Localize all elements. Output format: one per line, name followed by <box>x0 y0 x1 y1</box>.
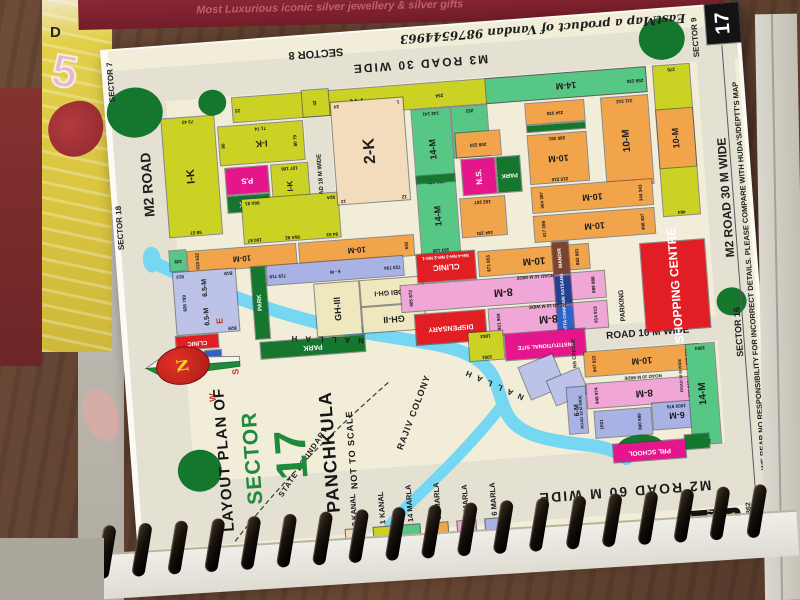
plot-number: 142 141 <box>422 110 439 116</box>
gh-3-label: GH-III <box>333 297 344 322</box>
block-10m-311: 10-M311 312298 <box>601 95 653 186</box>
compass-n: N <box>173 357 193 373</box>
plot-number: 80 79 <box>293 135 299 147</box>
ns-creche-label-label: NS CRECHE <box>571 338 578 368</box>
plot-number: 24 <box>334 103 339 108</box>
plot-number: 719 718 <box>269 272 286 278</box>
block-10m-364-label: 10-M <box>582 191 603 202</box>
block-ik-c: I-K71 748680 79 <box>218 121 305 165</box>
plot-number: 871 853 <box>486 255 492 272</box>
nallah-label-label: N A L L A H <box>288 334 364 344</box>
road-18m-label-s-label: ROAD 18 M WIDE <box>578 395 584 429</box>
prl-school-label: PRL SCHOOL <box>628 446 671 456</box>
plot-number: 276 <box>667 66 675 71</box>
block-1063: 10631051 <box>468 331 504 361</box>
plot-number: NH-4 NH-3 NH-2 NH-1 <box>422 252 469 260</box>
plot-42: 42 <box>302 89 330 117</box>
block-10m-871-label: 10-M <box>522 254 545 266</box>
block-ik-d-label: I-K <box>286 180 295 191</box>
plot-number: 642 <box>405 241 410 249</box>
m2-road-label-label: M2 ROAD <box>138 152 157 217</box>
plot-number: 334 335 <box>546 109 563 115</box>
plot-number: 862 861 <box>576 248 582 265</box>
block-8m-1-label: 8-M <box>493 285 513 297</box>
sector-9-label-label: SECTOR 9 <box>690 17 701 57</box>
ns-site: N.S. <box>461 158 497 195</box>
notebook-pages-edge <box>92 510 799 600</box>
sector-18-label-label: SECTOR 18 <box>115 206 126 251</box>
plot-number: 73 43 <box>182 118 194 124</box>
block-14m-c-label: 14-M <box>555 80 576 91</box>
magazine-letter: D <box>50 24 61 41</box>
plot-number: 229 <box>174 258 182 263</box>
clinic-main: CLINICNH-4 NH-3 NH-2 NH-1 <box>416 251 476 283</box>
plot-number: 6 - M <box>330 268 341 274</box>
dispensary-label: DISPENSARY <box>428 322 474 332</box>
magazine-red-blob <box>42 95 111 162</box>
plot-number: 1004 <box>695 344 706 350</box>
ps-site-label: P.S <box>241 176 253 185</box>
sector-8-label-label: SECTOR 8 <box>288 45 343 60</box>
photo-of-map: D 5 Most Luxurious iconic silver jewelle… <box>0 0 800 600</box>
ns-site-label: N.S. <box>474 168 483 184</box>
plot-number: 344 343 <box>639 184 645 201</box>
plot-number: 107 106 <box>281 165 298 171</box>
park-label: PARK <box>500 171 517 178</box>
sheet-number-label: 17 <box>712 11 734 35</box>
park-label: PARK <box>257 294 264 311</box>
plot-number: 25 <box>235 107 240 112</box>
parking-label-label: PARKING <box>618 289 627 321</box>
block-65m-label: 6.5-M <box>201 279 209 297</box>
block-2k: 2-K2411312 <box>331 97 410 204</box>
block-10m-208: 208 233 <box>455 130 501 157</box>
compass-e: E <box>214 317 224 324</box>
plot-number: 311 312 <box>616 97 633 103</box>
plot-number: 1051 <box>482 354 493 360</box>
plot-number: 1021 <box>600 419 606 430</box>
plot-number: 990 989 <box>638 413 644 430</box>
plot-number: 58 57 <box>190 229 202 235</box>
park <box>685 433 710 449</box>
magazine-red-edge <box>0 88 42 366</box>
plot-number: 12 <box>402 194 407 199</box>
block-10m-417-label: 10-M <box>584 220 605 231</box>
mandir-label: MANDIR <box>558 248 564 268</box>
block-10m-row-b-label: 10-M <box>347 245 366 254</box>
plot-number: 813 <box>176 273 184 278</box>
plot-number: 192 207 <box>474 198 491 204</box>
block-8m-3-label: 8-M <box>635 387 653 398</box>
plot-number: 380 381 <box>548 134 565 140</box>
sheet-number: 17 <box>704 2 741 44</box>
plot-number: 259 238 <box>627 77 644 83</box>
plot-number: 86 <box>222 143 227 148</box>
shopping-centre-label: SHOPPING CENTRE <box>665 227 686 344</box>
plot-number: 921 904 <box>497 313 503 330</box>
park: PARK <box>496 156 522 193</box>
plot-number: 914 913 <box>594 306 600 323</box>
magazine-number: 5 <box>48 42 83 100</box>
plot-number: 1 <box>397 99 400 104</box>
plot-number: 95A 92 <box>285 234 300 240</box>
block-ik-a: I-K73 4358 57 <box>161 116 222 238</box>
plot-number: 826 799 <box>183 295 189 312</box>
plot-number: 1063 <box>480 333 491 339</box>
block-14m-a-label: 14-M <box>428 139 439 160</box>
plot-number: 96A 91 <box>245 199 260 205</box>
plot-number: 484 <box>678 209 686 214</box>
block-10m-row-a-label: 10-M <box>233 253 252 262</box>
table-corner <box>0 538 104 600</box>
block-10m-380-label: 10-M <box>548 153 569 164</box>
plot-number: 408 407 <box>641 213 647 230</box>
plot-number: 889 888 <box>592 276 598 293</box>
plot-number: 100 87 <box>247 237 261 243</box>
clinic-main-label: CLINIC <box>433 262 460 272</box>
plot-number: 94 93 <box>326 231 338 237</box>
plot-number: 42 <box>313 100 318 105</box>
shopping-centre: SHOPPING CENTRE <box>640 239 710 332</box>
plot-number: 905 872 <box>409 290 415 307</box>
m2-road-label: M2 ROAD <box>124 132 170 239</box>
block-10m-164: 192 207164 191 <box>460 196 507 237</box>
block-10m-right: 10-M <box>656 108 696 169</box>
magazine-headline-text: Most Luxurious iconic silver jewellery &… <box>196 0 463 16</box>
plot-number: 13 <box>341 198 346 203</box>
plot-229: 229 <box>169 250 186 271</box>
block-ik-c-label: I-K <box>255 138 268 148</box>
sector-7-label-label: SECTOR 7 <box>106 62 117 102</box>
block-ik-a-label: I-K <box>186 169 198 184</box>
block-10m-right-label: 10-M <box>671 127 682 148</box>
plot-number: 947 922 <box>592 355 598 372</box>
plot-number: 633 632 <box>195 253 201 270</box>
block-10m-380: 10-M380 381215 216 <box>528 132 589 184</box>
plot-number: 253 <box>465 107 473 112</box>
gh-2-label: GH-II <box>383 313 405 324</box>
plot-number: 364 397 <box>540 191 546 208</box>
plot-number: 417 398 <box>542 220 548 237</box>
block-10m-311-label: 10-M <box>621 129 633 152</box>
block-6m-b-label: 6-M <box>669 410 685 420</box>
block-10m-947-label: 10-M <box>631 355 652 366</box>
ps-site: P.S <box>225 166 269 195</box>
block-14m-right-label: 14-M <box>698 382 710 405</box>
block-2k-label: 2-K <box>361 138 379 165</box>
gh-3: GH-III <box>314 281 362 336</box>
block-8m-2-label: 8-M <box>539 312 559 324</box>
institutional-site-label: INSTITUTIONAL SITE <box>517 340 573 350</box>
compass-s: S <box>230 368 240 375</box>
plot-number: 92A <box>326 194 335 199</box>
plot-number: 254 <box>435 92 443 97</box>
block-14m-a-label: 14-M <box>433 205 444 226</box>
block-6m-a: 1021990 989 <box>595 408 653 438</box>
plot-number: 948 974 <box>595 387 601 404</box>
plot-number: 723 734 <box>384 263 401 269</box>
plot-number: B19 <box>223 270 232 275</box>
plot-number: 215 216 <box>551 175 568 181</box>
plot-number: 208 233 <box>470 141 487 147</box>
plot-number: 71 74 <box>254 125 266 131</box>
plot-number: 164 191 <box>476 229 493 235</box>
block-ik-e: 100 8795A 9294 9396A 9192A <box>242 193 341 244</box>
